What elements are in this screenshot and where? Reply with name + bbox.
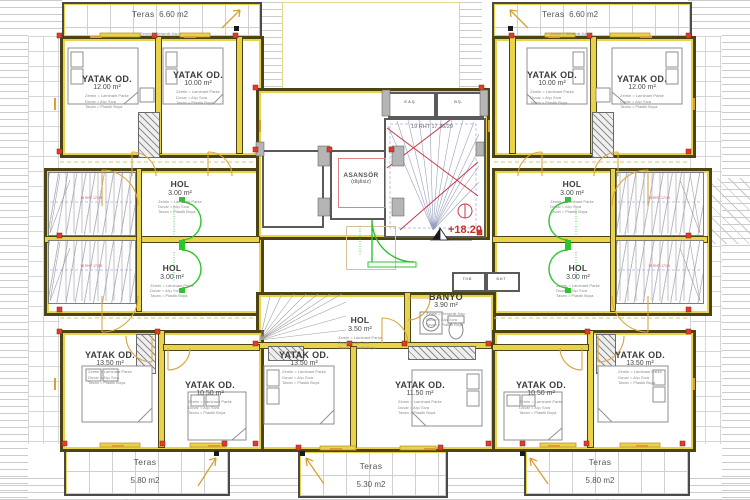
room-label-bedroom-bm-left: YATAK OD. 13.50 m² Zemin = Laminant Park… [264, 350, 344, 389]
room-area: 3.00 m² [543, 274, 613, 282]
room-label-hol-left-bottom: HOL 3.00 m² Zemin = Laminant ParkeDuvar … [137, 264, 207, 303]
terrace-name: Teras [589, 457, 612, 467]
eave-corner-top-left [0, 0, 62, 34]
room-label-banyo: BANYO 3.90 m² Zemin = Seramik Kap.Duvar … [411, 292, 481, 331]
main-stair-label: 19 RHT 17.36/29 [387, 124, 477, 130]
room-name: YATAK OD. [380, 380, 460, 390]
room-name: YATAK OD. [264, 350, 344, 360]
room-label-bedroom-bl-outer: YATAK OD. 13.50 m² Zemin = Laminant Park… [70, 350, 150, 389]
wardrobe-hatch [592, 112, 614, 158]
room-spec: Tavan = Plastik Boya [620, 104, 664, 109]
elevator-type: (dişlisiz) [331, 179, 391, 185]
room-name: YATAK OD. [170, 380, 250, 390]
room-name: YATAK OD. [602, 74, 682, 84]
room-name: YATAK OD. [158, 70, 238, 80]
room-spec: Tavan = Plastik Boya [550, 209, 594, 214]
stair-flight-right-bottom [616, 240, 704, 304]
terrace-name: Teras [132, 9, 155, 19]
room-label-bedroom-bl-inner: YATAK OD. 10.50 m² Zemin = Laminant Park… [170, 380, 250, 419]
wall-segment [163, 344, 260, 351]
room-name: YATAK OD. [600, 350, 680, 360]
room-spec: Zemin = Laminant Parke [176, 89, 220, 94]
room-name: BANYO [411, 292, 481, 302]
shaft-label-bs: B.Ş. [436, 100, 480, 104]
terrace-area: 5.80 m2 [586, 476, 615, 485]
void-strip-right [458, 2, 482, 90]
wall-segment [404, 292, 411, 348]
shaft-thb [452, 272, 486, 292]
room-label-bedroom-tl-inner: YATAK OD. 10.00 m² Zemin = Laminant Park… [158, 70, 238, 109]
room-spec: Tavan = Plastik Boya [176, 100, 220, 105]
stair-note: 18 RHT 17/28 [51, 197, 131, 201]
room-name: HOL [543, 264, 613, 274]
room-spec: Zemin = Laminant Parke [618, 369, 662, 374]
room-name: HOL [145, 180, 215, 190]
room-spec: Tavan = Plastik Boya [158, 209, 202, 214]
terrace-area: 5.80 m2 [131, 476, 160, 485]
light-shaft [262, 150, 324, 228]
eave-strip-left [0, 0, 28, 500]
stair-flight-left-bottom [48, 240, 136, 304]
room-area: 12.00 m² [602, 84, 682, 92]
room-name: HOL [137, 264, 207, 274]
room-label-hol-right-top: HOL 3.00 m² Zemin = Laminant ParkeDuvar … [537, 180, 607, 219]
shaft-bs [436, 92, 484, 118]
room-area: 13.50 m² [264, 360, 344, 368]
floor-plan-canvas: Teras 6.60 m2 Zemin = Seramik Kap. Teras… [0, 0, 750, 500]
terrace-area: 6.60 m2 [159, 10, 188, 19]
terrace-area: 5.30 m2 [357, 480, 386, 489]
shaft-label-thb: T.H.B [452, 278, 482, 282]
room-area: 10.50 m² [501, 390, 581, 398]
room-spec: Tavan = Plastik Boya [556, 293, 600, 298]
main-staircase [384, 118, 486, 238]
room-spec: Tavan = Plastik Boya [618, 380, 662, 385]
room-name: YATAK OD. [67, 74, 147, 84]
wardrobe-hatch [408, 346, 476, 360]
room-name: HOL [325, 316, 395, 326]
wall-segment [492, 344, 589, 351]
room-spec: Zemin = Laminant Parke [530, 89, 574, 94]
room-spec: Tavan = Plastik Boya [150, 293, 194, 298]
shaft-label-eas: E.A.Ş. [388, 100, 432, 104]
room-label-bedroom-tr-inner: YATAK OD. 10.00 m² Zemin = Laminant Park… [512, 70, 592, 109]
shaft-eas [388, 92, 436, 118]
room-spec: Zemin = Laminant Parke [188, 399, 232, 404]
room-area: 3.00 m² [145, 190, 215, 198]
room-label-hol-center: HOL 3.50 m² Zemin = Laminant ParkeDuvar … [325, 316, 395, 355]
room-area: 3.00 m² [537, 190, 607, 198]
room-spec: Tavan = Plastik Boya [338, 345, 382, 350]
stair-note: 18 RHT 17/28 [619, 197, 699, 201]
room-name: YATAK OD. [70, 350, 150, 360]
stair-note: 18 RHT 17/28 [619, 265, 699, 269]
stair-flight-left-top [48, 172, 136, 236]
terrace-name: Teras [360, 461, 383, 471]
room-area: 13.50 m² [600, 360, 680, 368]
room-area: 10.00 m² [158, 80, 238, 88]
room-name: HOL [537, 180, 607, 190]
terrace-spec: Zemin = Seramik Kap. [550, 31, 590, 36]
room-spec: Tavan = Plastik Boya [530, 100, 574, 105]
room-label-hol-right-bottom: HOL 3.00 m² Zemin = Laminant ParkeDuvar … [543, 264, 613, 303]
room-name: YATAK OD. [501, 380, 581, 390]
wardrobe-hatch [138, 112, 160, 158]
room-area: 3.00 m² [137, 274, 207, 282]
room-label-bedroom-br-inner: YATAK OD. 10.50 m² Zemin = Laminant Park… [501, 380, 581, 419]
eave-corner-top-right [688, 0, 750, 34]
room-label-bedroom-tl-outer: YATAK OD. 12.00 m² Zemin = Laminant Park… [67, 74, 147, 113]
stair-note: 18 RHT 17/28 [51, 265, 131, 269]
room-spec: Tavan = Plastik Boya [85, 104, 129, 109]
room-spec: Zemin = Seramik Kap. [426, 311, 466, 316]
room-spec: Tavan = Plastik Boya [282, 380, 326, 385]
room-spec: Zemin = Laminant Parke [519, 399, 563, 404]
room-name: YATAK OD. [512, 70, 592, 80]
terrace-name: Teras [542, 9, 565, 19]
room-spec: Zemin = Laminant Parke [88, 369, 132, 374]
room-area: 3.50 m² [325, 326, 395, 334]
room-spec: Tavan = Plastik Boya [88, 380, 132, 385]
terrace-label-bottom-left: Teras 5.80 m2 Zemin = Seramik Kap. [100, 452, 190, 500]
room-spec: Zemin = Laminant Parke [85, 93, 129, 98]
terrace-label-top-left: Teras 6.60 m2 Zemin = Seramik Kap. [115, 4, 205, 41]
level-marker: +18.20 [448, 224, 482, 236]
door-annotation-box [346, 226, 396, 270]
wall-segment [350, 346, 357, 448]
terrace-label-bottom-center: Teras 5.30 m2 Zemin = Seramik Kap. [326, 456, 416, 500]
stair-flight-right-top [616, 172, 704, 236]
terrace-area: 6.60 m2 [569, 10, 598, 19]
elevator-label: ASANSÖR (dişlisiz) [331, 172, 391, 186]
terrace-name: Teras [134, 457, 157, 467]
terrace-label-bottom-right: Teras 5.80 m2 Zemin = Seramik Kap. [555, 452, 645, 500]
room-spec: Tavan = Plastik Boya [519, 410, 563, 415]
shaft-label-bht: B.H.T [486, 278, 516, 282]
terrace-spec: Zemin = Seramik Kap. [140, 31, 180, 36]
room-spec: Tavan = Plastik Boya [398, 410, 442, 415]
eave-strip-right [722, 0, 750, 500]
room-spec: Zemin = Laminant Parke [398, 399, 442, 404]
room-spec: Zemin = Laminant Parke [282, 369, 326, 374]
room-spec: Zemin = Laminant Parke [620, 93, 664, 98]
terrace-label-top-right: Teras 6.60 m2 Zemin = Seramik Kap. [525, 4, 615, 41]
room-spec: Tavan = Plastik Boya [188, 410, 232, 415]
room-area: 10.00 m² [512, 80, 592, 88]
room-label-bedroom-bm-right: YATAK OD. 11.50 m² Zemin = Laminant Park… [380, 380, 460, 419]
room-area: 13.50 m² [70, 360, 150, 368]
elevator-name: ASANSÖR [331, 172, 391, 179]
room-label-bedroom-tr-outer: YATAK OD. 12.00 m² Zemin = Laminant Park… [602, 74, 682, 113]
room-spec: Tavan = Plastik Boya [426, 322, 466, 327]
room-label-hol-left-top: HOL 3.00 m² Zemin = Laminant ParkeDuvar … [145, 180, 215, 219]
room-label-bedroom-br-outer: YATAK OD. 13.50 m² Zemin = Laminant Park… [600, 350, 680, 389]
room-area: 10.50 m² [170, 390, 250, 398]
shaft-bht [486, 272, 520, 292]
room-area: 11.50 m² [380, 390, 460, 398]
room-area: 3.90 m² [411, 302, 481, 310]
room-area: 12.00 m² [67, 84, 147, 92]
